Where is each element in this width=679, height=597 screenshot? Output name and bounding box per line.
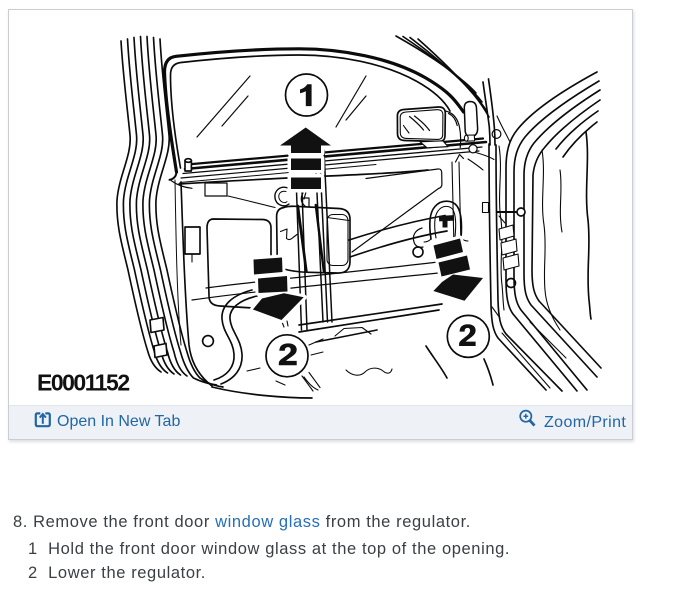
svg-text:E0001152: E0001152 bbox=[37, 370, 129, 396]
